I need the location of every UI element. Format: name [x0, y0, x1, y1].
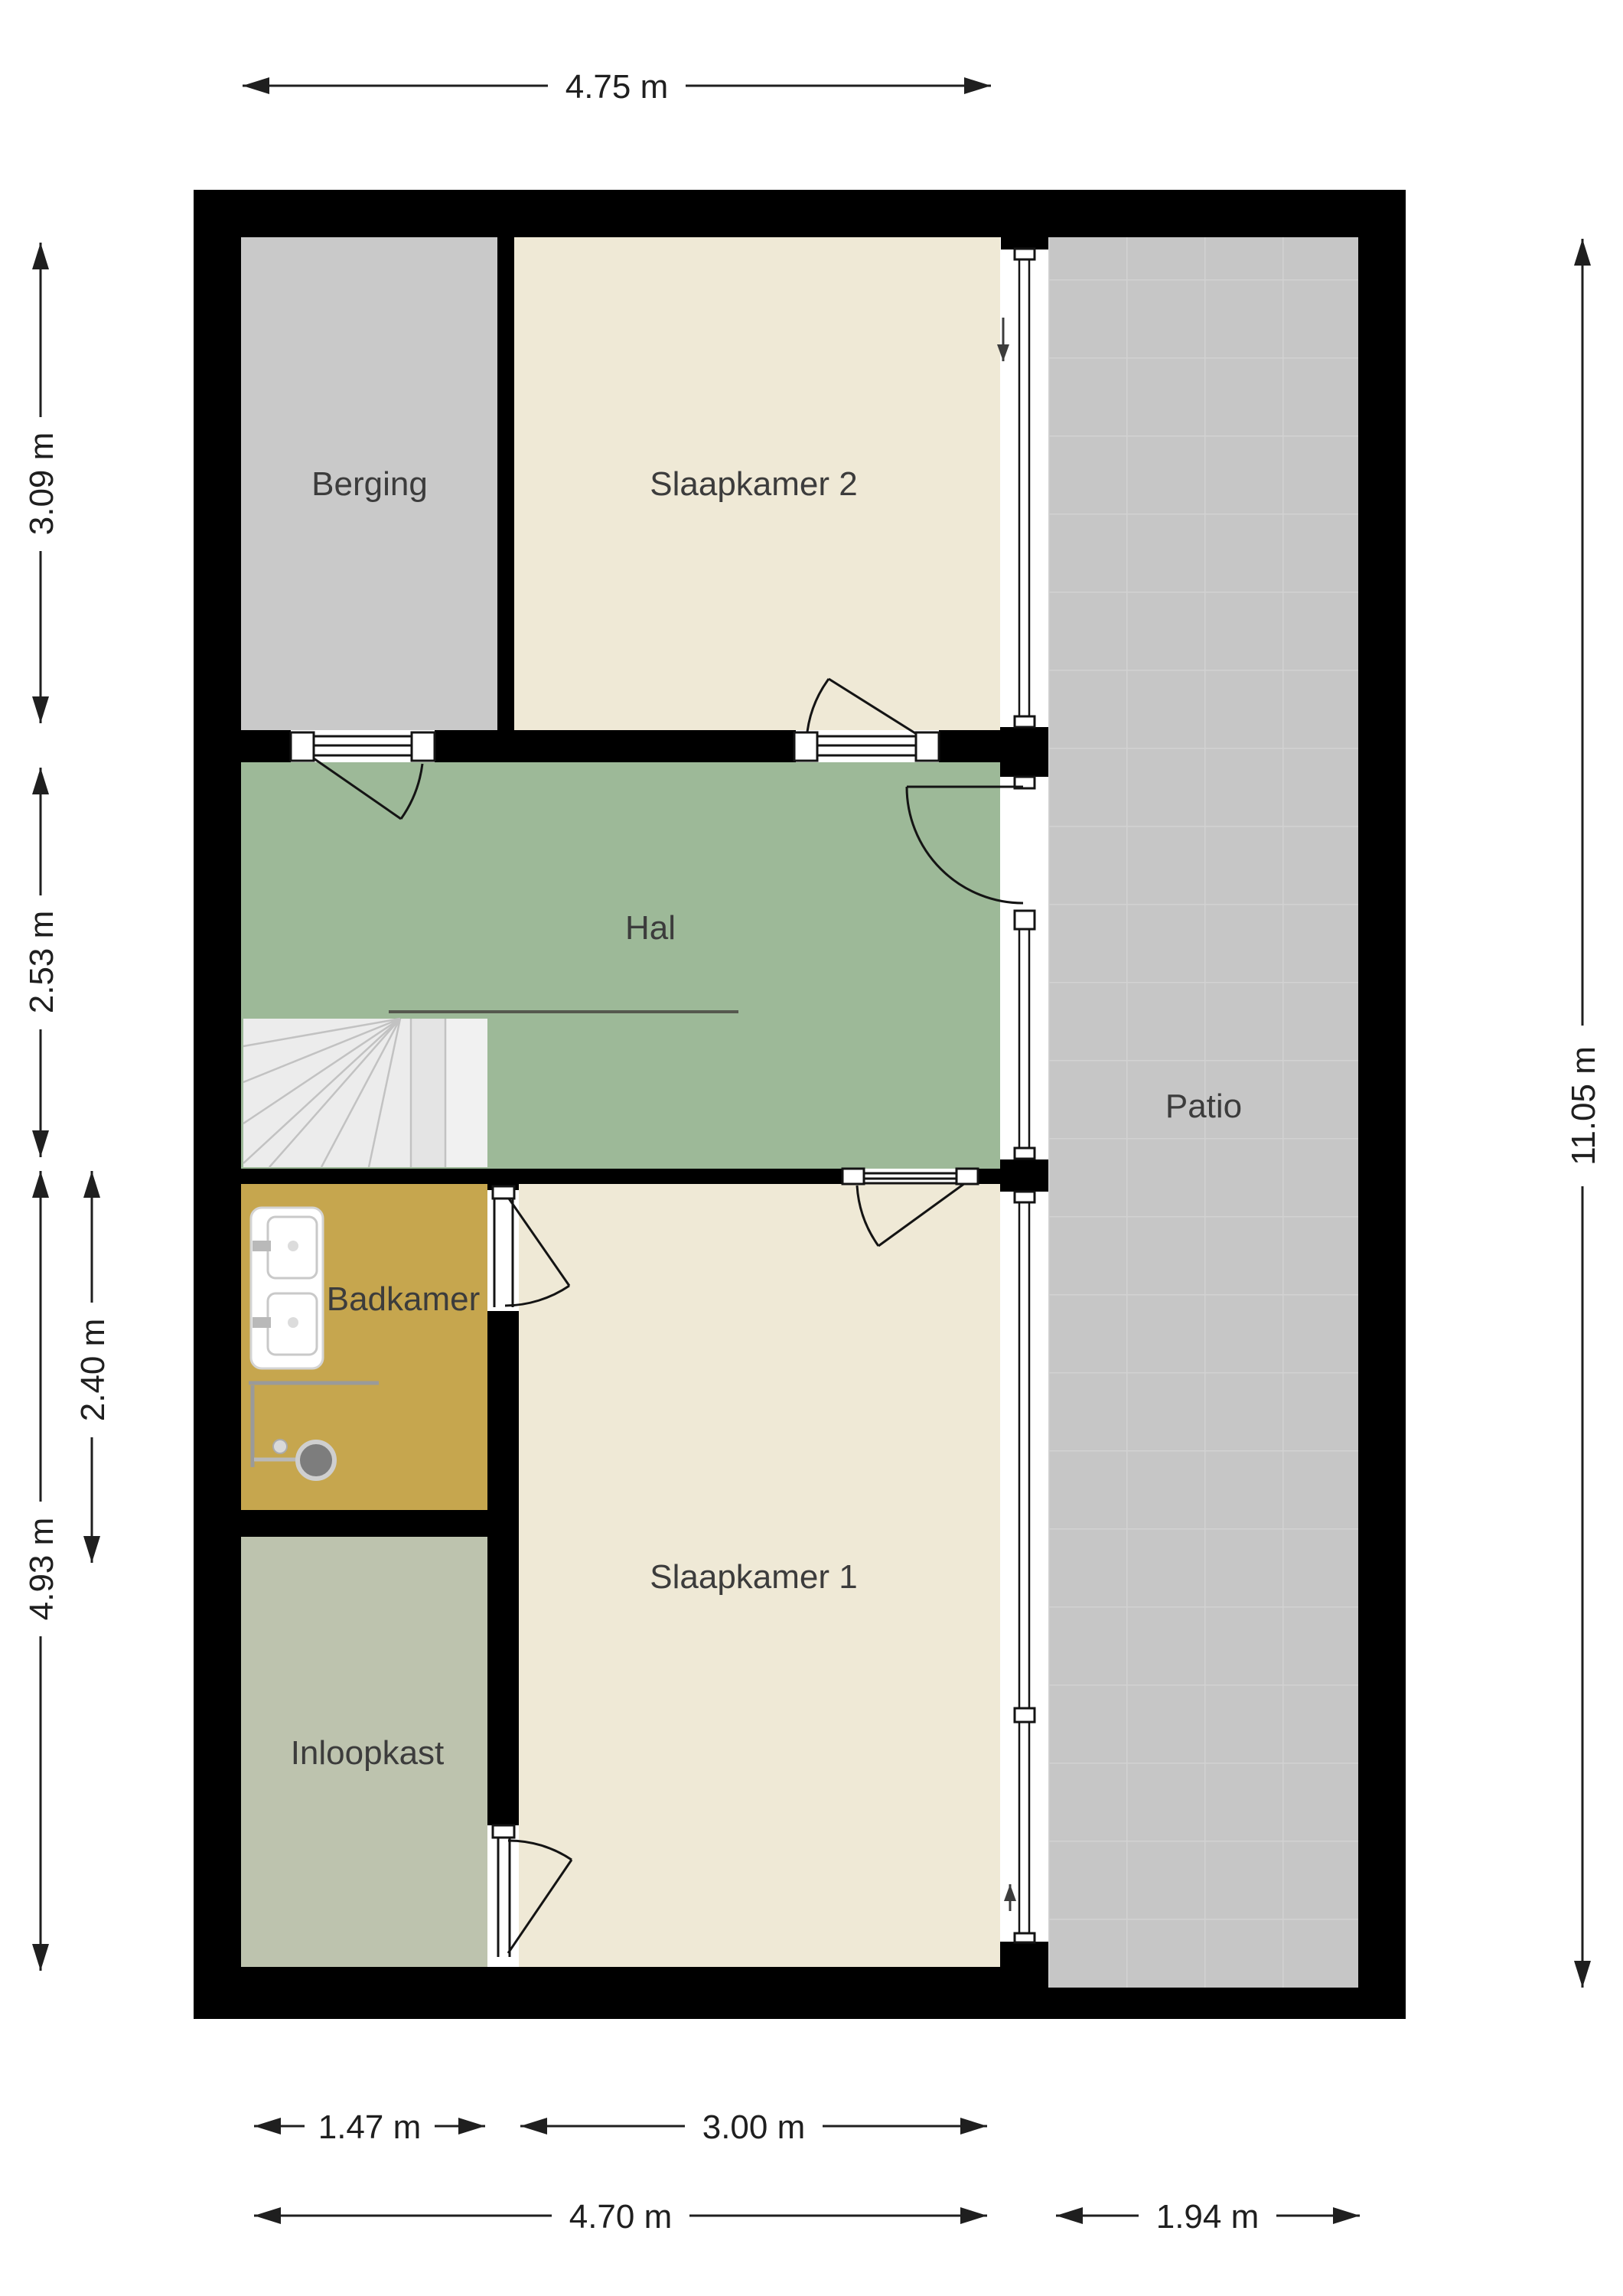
- window-caps: [1015, 249, 1035, 1942]
- wall-badkamer-inloopkast: [241, 1510, 519, 1537]
- door-berging-threshold: [298, 736, 427, 755]
- door-badkamer-threshold: [494, 1191, 513, 1307]
- window-cap: [1015, 911, 1035, 929]
- window-cap: [1015, 249, 1035, 259]
- door-slaapkamer2-threshold: [802, 736, 931, 755]
- floorplan-svg: Berging Slaapkamer 2 Hal Badkamer Slaapk…: [0, 0, 1623, 2296]
- shower-mixer-icon: [273, 1440, 287, 1453]
- wall-badkamer-east: [487, 1311, 519, 1510]
- stairs-flight-step: [445, 1019, 487, 1167]
- dim-label-patio-width: 1.94 m: [1156, 2198, 1260, 2236]
- door-jamb: [493, 1825, 514, 1838]
- dim-label-left-top: 3.09 m: [23, 432, 60, 536]
- label-berging: Berging: [311, 465, 428, 503]
- dim-label-slaapkamer1: 3.00 m: [702, 2108, 806, 2146]
- window-cap: [1015, 1933, 1035, 1942]
- dim-label-badkamer-height: 2.40 m: [74, 1319, 112, 1422]
- door-jamb: [412, 732, 435, 761]
- wall-hal-south-b: [978, 1169, 1000, 1184]
- wall-hal-north-b: [435, 730, 796, 762]
- wall-hal-north-a: [241, 730, 291, 762]
- wall-hal-south-a: [241, 1169, 842, 1184]
- wall-right: [1358, 190, 1406, 2019]
- label-slaapkamer-2: Slaapkamer 2: [650, 465, 857, 503]
- door-jamb: [291, 732, 314, 761]
- window-cap: [1015, 1192, 1035, 1202]
- basin-drain-icon: [288, 1241, 298, 1251]
- floorplan-canvas: Berging Slaapkamer 2 Hal Badkamer Slaapk…: [0, 0, 1623, 2296]
- label-inloopkast: Inloopkast: [291, 1734, 445, 1772]
- stairs-flight-step: [411, 1019, 445, 1167]
- door-inloopkast-threshold: [498, 1835, 510, 1957]
- label-hal: Hal: [625, 909, 676, 947]
- window-slaapkamer1-lower: [1019, 1722, 1029, 1933]
- label-badkamer: Badkamer: [327, 1280, 481, 1318]
- dim-label-top-width: 4.75 m: [565, 68, 669, 106]
- basin-drain-icon: [288, 1317, 298, 1328]
- door-slaapkamer1-threshold: [850, 1173, 970, 1183]
- faucet-icon: [253, 1317, 271, 1328]
- entry-arrows: [1003, 318, 1010, 1911]
- window-slaapkamer2: [1019, 259, 1029, 718]
- door-jamb: [957, 1169, 978, 1184]
- facade-post-bottom: [1000, 1942, 1048, 1967]
- door-jamb: [493, 1186, 514, 1199]
- door-jamb: [842, 1169, 864, 1184]
- wall-bottom-patio: [1048, 1988, 1406, 2019]
- wall-inloopkast-east: [487, 1537, 519, 1825]
- window-mullion: [1015, 1708, 1035, 1722]
- door-jamb: [916, 732, 939, 761]
- dim-label-bottom-total: 4.70 m: [569, 2198, 673, 2236]
- door-jamb: [794, 732, 817, 761]
- shower-head-icon: [298, 1442, 334, 1479]
- faucet-icon: [253, 1241, 271, 1251]
- facade-post-2: [1000, 1159, 1048, 1192]
- wall-berging-slaapkamer2: [497, 237, 514, 730]
- window-cap: [1015, 1148, 1035, 1159]
- wall-left: [194, 190, 241, 2019]
- dim-label-left-middle: 2.53 m: [23, 911, 60, 1014]
- label-slaapkamer-1: Slaapkamer 1: [650, 1558, 857, 1596]
- window-cap: [1015, 716, 1035, 727]
- wall-top: [194, 190, 1406, 237]
- wall-bottom-indoor: [194, 1967, 1048, 2019]
- facade-post-1: [1000, 727, 1048, 777]
- window-slaapkamer1-upper: [1019, 1202, 1029, 1708]
- dim-label-inloopkast: 1.47 m: [318, 2108, 422, 2146]
- facade-glazing: [1019, 259, 1029, 1933]
- label-patio: Patio: [1165, 1088, 1242, 1125]
- dim-label-right-height: 11.05 m: [1565, 1046, 1602, 1166]
- wall-hal-north-c: [939, 730, 1000, 762]
- window-hal: [1019, 930, 1029, 1148]
- dim-label-left-bottom-total: 4.93 m: [23, 1518, 60, 1621]
